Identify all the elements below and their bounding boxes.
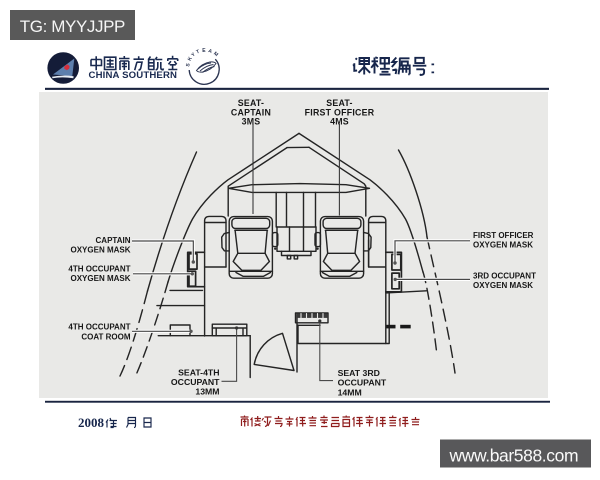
svg-text:4TH OCCUPANT: 4TH OCCUPANT — [68, 323, 130, 332]
svg-text:OCCUPANT: OCCUPANT — [338, 378, 387, 388]
svg-text:OCCUPANT: OCCUPANT — [171, 377, 220, 387]
svg-text:3MS: 3MS — [242, 117, 261, 127]
svg-text:OXYGEN MASK: OXYGEN MASK — [70, 246, 130, 255]
svg-text:OXYGEN MASK: OXYGEN MASK — [473, 281, 533, 290]
svg-text:SEAT-: SEAT- — [238, 98, 265, 108]
svg-text:OXYGEN MASK: OXYGEN MASK — [70, 274, 130, 283]
svg-text:4MS: 4MS — [330, 117, 349, 127]
svg-text:CAPTAIN: CAPTAIN — [96, 236, 131, 245]
svg-text:www.bar588.com: www.bar588.com — [449, 445, 579, 465]
svg-text:T: T — [196, 49, 201, 56]
svg-text:3RD OCCUPANT: 3RD OCCUPANT — [473, 272, 536, 281]
svg-text:13MM: 13MM — [195, 387, 219, 397]
svg-text:CHINA SOUTHERN: CHINA SOUTHERN — [89, 70, 178, 81]
svg-text:14MM: 14MM — [338, 387, 362, 397]
svg-text:TG: MYYJJPP: TG: MYYJJPP — [20, 17, 125, 36]
svg-text:E: E — [202, 48, 206, 54]
svg-text:2008: 2008 — [78, 415, 105, 430]
svg-text:COAT ROOM: COAT ROOM — [81, 333, 131, 342]
svg-text:4TH OCCUPANT: 4TH OCCUPANT — [68, 265, 130, 274]
svg-text:S: S — [185, 62, 192, 67]
svg-text:SEAT-: SEAT- — [326, 98, 353, 108]
svg-text:OXYGEN MASK: OXYGEN MASK — [473, 241, 533, 250]
svg-text:FIRST OFFICER: FIRST OFFICER — [473, 231, 534, 240]
svg-text:SEAT-4TH: SEAT-4TH — [178, 367, 219, 377]
svg-text:SEAT 3RD: SEAT 3RD — [338, 368, 380, 378]
svg-text:M: M — [212, 51, 219, 58]
